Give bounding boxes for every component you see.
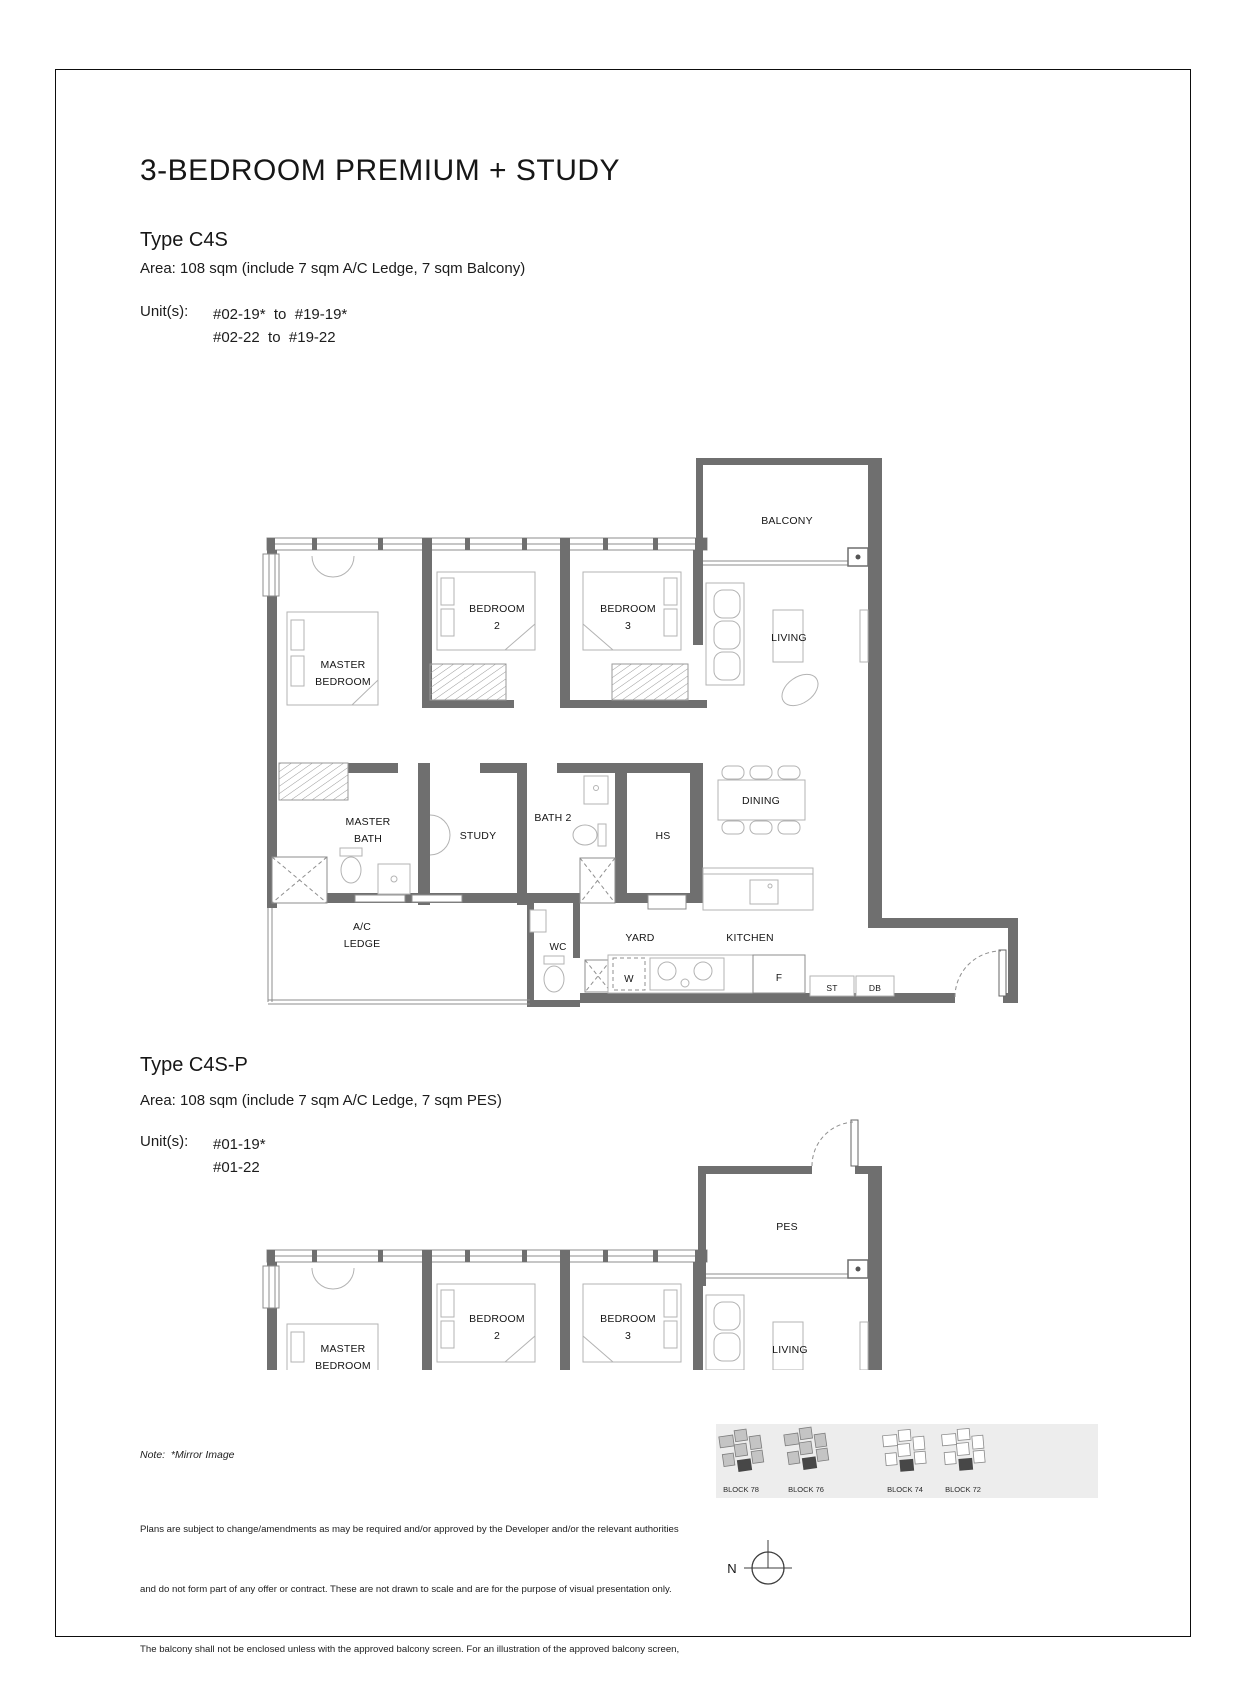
plan2-furniture — [287, 1268, 868, 1384]
vent-window — [412, 895, 462, 902]
room-label-bedroom-2: BEDROOM — [469, 603, 525, 615]
room-label-bedroom-3: 3 — [625, 1330, 631, 1342]
block-label-76: BLOCK 76 — [788, 1485, 824, 1494]
north-arrow: N — [727, 1540, 792, 1584]
brochure-page: 3-BEDROOM PREMIUM + STUDY Type C4S Area:… — [0, 0, 1248, 1700]
window-band — [267, 1250, 707, 1262]
appliance-label-fridge: F — [776, 973, 782, 984]
plan1-furniture — [287, 556, 894, 996]
room-label-bedroom-3: BEDROOM — [600, 1313, 656, 1325]
north-label: N — [727, 1561, 737, 1576]
room-label-hs: HS — [656, 830, 671, 842]
block-label-78: BLOCK 78 — [723, 1485, 759, 1494]
room-label-master-bath: BATH — [354, 833, 382, 845]
label-db: DB — [869, 983, 881, 993]
room-label-master-bedroom: MASTER — [321, 1343, 366, 1355]
room-label-master-bedroom: BEDROOM — [315, 676, 371, 688]
plans-canvas: BALCONY LIVING DINING MASTER BEDROOM BED… — [0, 0, 1248, 1700]
room-label-bedroom-3: BEDROOM — [600, 603, 656, 615]
label-store: ST — [826, 983, 837, 993]
wc-basin — [530, 910, 546, 932]
room-label-bedroom-2: BEDROOM — [469, 1313, 525, 1325]
side-window — [263, 554, 279, 596]
room-label-ac-ledge: LEDGE — [344, 938, 381, 950]
room-label-bedroom-2: 2 — [494, 620, 500, 632]
service-shafts — [272, 857, 615, 992]
appliance-label-washer: W — [624, 974, 634, 985]
tv-console — [860, 1322, 868, 1370]
study-desk — [430, 815, 450, 855]
room-label-wc: WC — [549, 942, 566, 953]
room-label-master-bedroom: BEDROOM — [315, 1360, 371, 1372]
hs-door — [648, 895, 686, 909]
room-label-bedroom-2: 2 — [494, 1330, 500, 1342]
bath2-toilet — [598, 824, 606, 846]
wc-toilet — [544, 956, 564, 964]
floor-plan-c4s: BALCONY LIVING DINING MASTER BEDROOM BED… — [263, 458, 1018, 1007]
room-label-ac-ledge: A/C — [353, 921, 371, 933]
room-label-yard: YARD — [625, 932, 654, 944]
pes-sliding-door — [706, 1260, 868, 1278]
ac-ledge-boundary — [268, 908, 530, 1004]
room-label-living: LIVING — [772, 1344, 808, 1356]
room-label-bedroom-3: 3 — [625, 620, 631, 632]
room-label-study: STUDY — [460, 830, 497, 842]
lounge-chair — [776, 668, 824, 712]
room-label-living: LIVING — [771, 632, 807, 644]
room-label-dining: DINING — [742, 795, 780, 807]
key-plan: BLOCK 78 BLOCK 76 BLOCK 74 BLOCK 72 — [716, 1424, 1098, 1498]
dressing-table — [312, 556, 354, 577]
room-label-master-bedroom: MASTER — [321, 659, 366, 671]
room-label-master-bath: MASTER — [346, 816, 391, 828]
balcony-sliding-door — [703, 548, 868, 566]
room-label-bath-2: BATH 2 — [534, 812, 571, 824]
toilet — [340, 848, 362, 856]
room-label-balcony: BALCONY — [761, 515, 813, 527]
vanity — [378, 864, 410, 894]
block-label-74: BLOCK 74 — [887, 1485, 923, 1494]
side-window — [263, 1266, 279, 1308]
room-label-pes: PES — [776, 1221, 798, 1233]
entry-door — [955, 950, 1006, 997]
window-band — [267, 538, 707, 550]
floor-plan-c4s-p: PES LIVING MASTER BEDROOM BEDROOM 2 BEDR… — [263, 1120, 882, 1384]
pes-entry-door — [812, 1120, 858, 1166]
tv-console — [860, 610, 868, 662]
vent-window — [355, 895, 405, 902]
room-label-kitchen: KITCHEN — [726, 932, 774, 944]
sofa — [706, 583, 744, 685]
block-label-72: BLOCK 72 — [945, 1485, 981, 1494]
